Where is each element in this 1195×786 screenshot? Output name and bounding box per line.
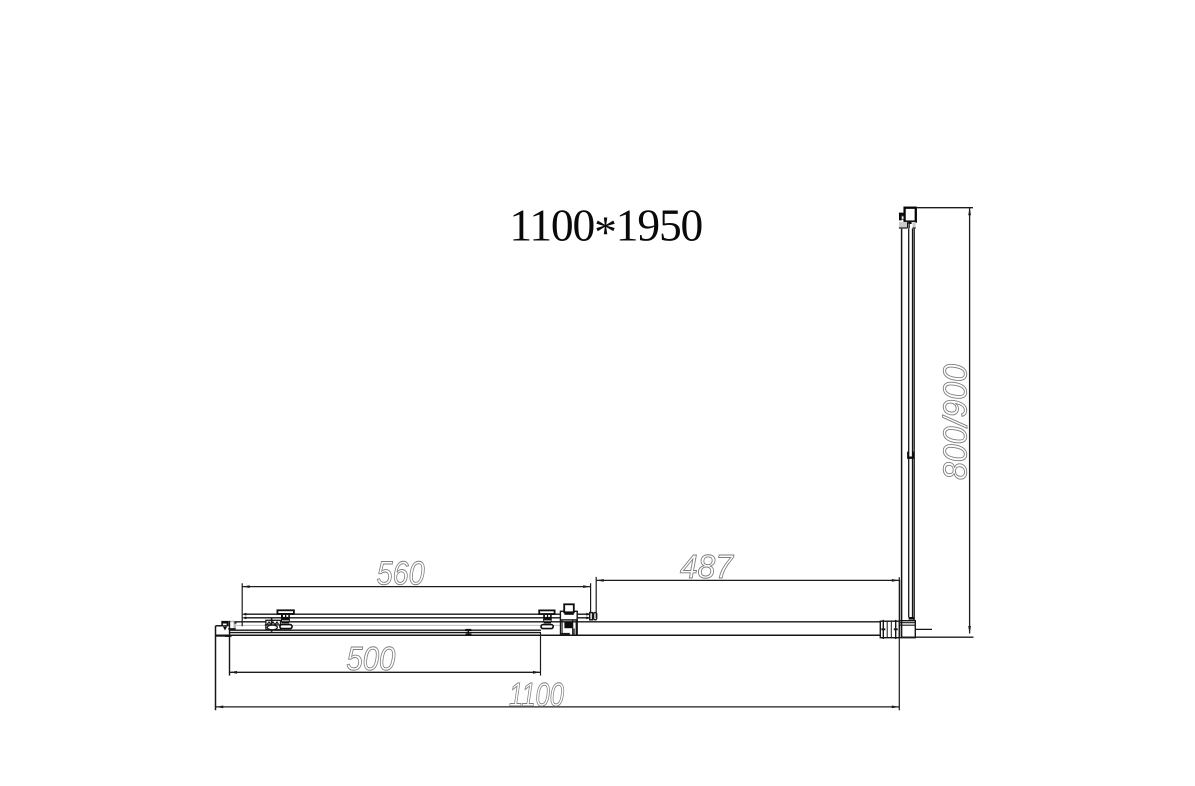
svg-text:560: 560 bbox=[377, 554, 426, 591]
svg-text:800/900: 800/900 bbox=[937, 363, 974, 480]
svg-text:500: 500 bbox=[346, 640, 396, 677]
svg-text:1100: 1100 bbox=[509, 676, 564, 713]
svg-text:1100*1950: 1100*1950 bbox=[509, 200, 702, 258]
svg-text:487: 487 bbox=[680, 548, 735, 585]
